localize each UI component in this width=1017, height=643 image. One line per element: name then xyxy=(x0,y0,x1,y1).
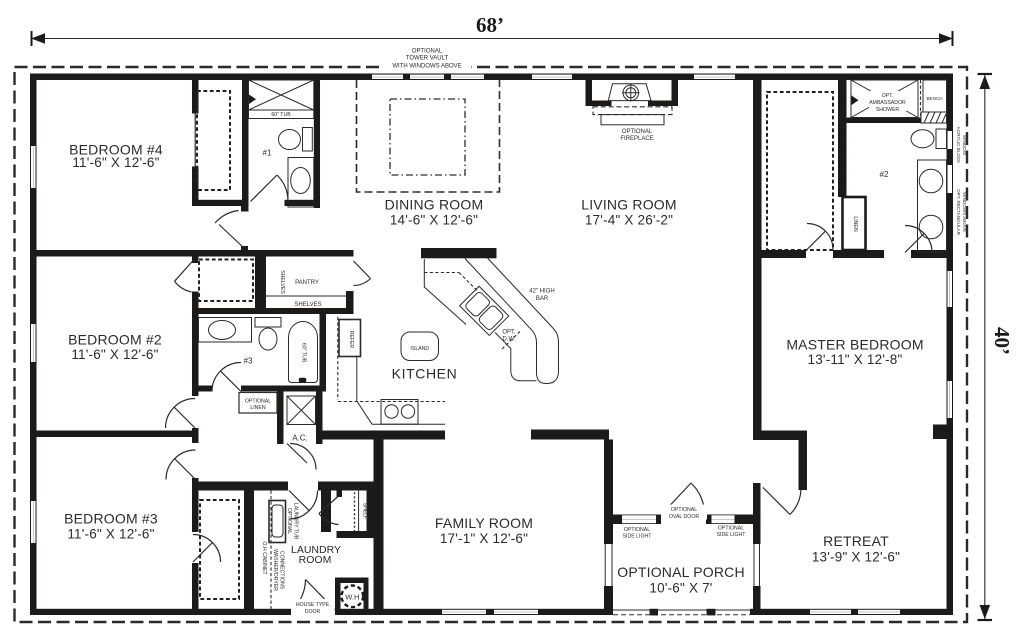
svg-text:W.H: W.H xyxy=(345,592,359,601)
svg-text:WITH WINDOWS ABOVE: WITH WINDOWS ABOVE xyxy=(392,64,461,70)
svg-text:10'-6" X 7': 10'-6" X 7' xyxy=(649,581,712,596)
svg-text:OPTIONAL: OPTIONAL xyxy=(622,129,653,135)
svg-text:OPT.: OPT. xyxy=(882,93,894,99)
svg-text:SHELVES: SHELVES xyxy=(279,270,285,294)
svg-text:17'-1" X 12'-6": 17'-1" X 12'-6" xyxy=(440,531,528,546)
svg-text:CONNECTIONS: CONNECTIONS xyxy=(279,551,285,590)
svg-text:SHOWER: SHOWER xyxy=(876,107,900,113)
svg-text:OPTIONAL: OPTIONAL xyxy=(286,508,292,534)
svg-text:OPTIONAL: OPTIONAL xyxy=(671,507,697,513)
svg-text:BAR: BAR xyxy=(536,296,549,302)
svg-text:DOOR: DOOR xyxy=(305,609,321,615)
svg-text:LINEN: LINEN xyxy=(852,216,858,232)
svg-text:ISLAND: ISLAND xyxy=(410,346,429,352)
svg-text:17'-4" X 26'-2": 17'-4" X 26'-2" xyxy=(585,213,673,228)
svg-text:#1: #1 xyxy=(263,149,272,158)
svg-text:DINING ROOM: DINING ROOM xyxy=(385,197,484,213)
svg-text:WASHER/DRYER: WASHER/DRYER xyxy=(272,549,278,591)
svg-text:HOUSE TYPE: HOUSE TYPE xyxy=(296,602,330,608)
svg-text:A.C.: A.C. xyxy=(292,434,308,443)
svg-text:11'-6" X 12'-6": 11'-6" X 12'-6" xyxy=(67,527,154,542)
svg-text:REFER: REFER xyxy=(348,331,354,349)
svg-text:60" TUB: 60" TUB xyxy=(301,343,307,363)
svg-text:OPT. RECTANGULAR: OPT. RECTANGULAR xyxy=(956,189,961,236)
svg-text:ACRYLIC BLOCK: ACRYLIC BLOCK xyxy=(956,127,961,165)
svg-text:SIDE LIGHT: SIDE LIGHT xyxy=(623,534,653,540)
svg-text:40’: 40’ xyxy=(990,327,1014,355)
svg-text:OPTIONAL PORCH: OPTIONAL PORCH xyxy=(617,564,745,580)
svg-text:WINDOW: WINDOW xyxy=(962,135,967,156)
svg-text:60" TUB: 60" TUB xyxy=(271,112,291,118)
svg-text:68’: 68’ xyxy=(476,13,504,37)
svg-text:TOWER VAULT: TOWER VAULT xyxy=(406,56,449,62)
svg-text:LINEN: LINEN xyxy=(250,405,266,411)
svg-text:KITCHEN: KITCHEN xyxy=(392,366,458,382)
svg-text:MASTER BEDROOM: MASTER BEDROOM xyxy=(786,337,923,353)
svg-text:13'-11" X 12'-8": 13'-11" X 12'-8" xyxy=(808,352,903,367)
svg-text:SHELF: SHELF xyxy=(362,503,368,520)
svg-text:11'-6" X 12'-6": 11'-6" X 12'-6" xyxy=(72,155,159,170)
svg-text:LAUNDRY TUB: LAUNDRY TUB xyxy=(293,503,299,540)
svg-text:OPTIONAL: OPTIONAL xyxy=(624,527,650,533)
svg-text:SHELVES: SHELVES xyxy=(294,302,321,308)
svg-text:#3: #3 xyxy=(244,357,253,366)
svg-text:#2: #2 xyxy=(880,170,889,179)
svg-text:42" HIGH: 42" HIGH xyxy=(529,289,554,295)
svg-text:OPTIONAL: OPTIONAL xyxy=(718,526,744,532)
svg-text:OVAL DOOR: OVAL DOOR xyxy=(669,514,700,520)
svg-text:OPTIONAL: OPTIONAL xyxy=(245,399,271,405)
svg-text:BENCH: BENCH xyxy=(926,96,942,101)
svg-text:D.W.: D.W. xyxy=(503,337,516,343)
svg-text:BEDROOM #3: BEDROOM #3 xyxy=(64,511,158,527)
svg-text:AMBASSADOR: AMBASSADOR xyxy=(869,100,906,106)
svg-text:13'-9" X 12'-6": 13'-9" X 12'-6" xyxy=(812,550,900,565)
svg-text:OPTIONAL: OPTIONAL xyxy=(412,49,443,55)
svg-text:ROOM: ROOM xyxy=(299,554,332,566)
svg-text:SIDE LIGHT: SIDE LIGHT xyxy=(717,532,747,538)
svg-text:PANTRY: PANTRY xyxy=(295,280,319,286)
svg-text:14'-6" X 12'-6": 14'-6" X 12'-6" xyxy=(390,213,478,228)
svg-text:11'-6" X 12'-6": 11'-6" X 12'-6" xyxy=(71,347,158,362)
svg-text:FAMILY ROOM: FAMILY ROOM xyxy=(435,515,533,531)
svg-text:FIREPLACE: FIREPLACE xyxy=(620,136,653,142)
svg-text:OPT.: OPT. xyxy=(502,330,516,336)
svg-text:WINDOWS ABOVE: WINDOWS ABOVE xyxy=(962,192,967,232)
svg-text:BEDROOM #2: BEDROOM #2 xyxy=(68,332,162,348)
svg-text:RETREAT: RETREAT xyxy=(823,533,889,549)
svg-text:LIVING ROOM: LIVING ROOM xyxy=(581,197,677,213)
svg-text:O.H CABINET: O.H CABINET xyxy=(261,541,267,575)
